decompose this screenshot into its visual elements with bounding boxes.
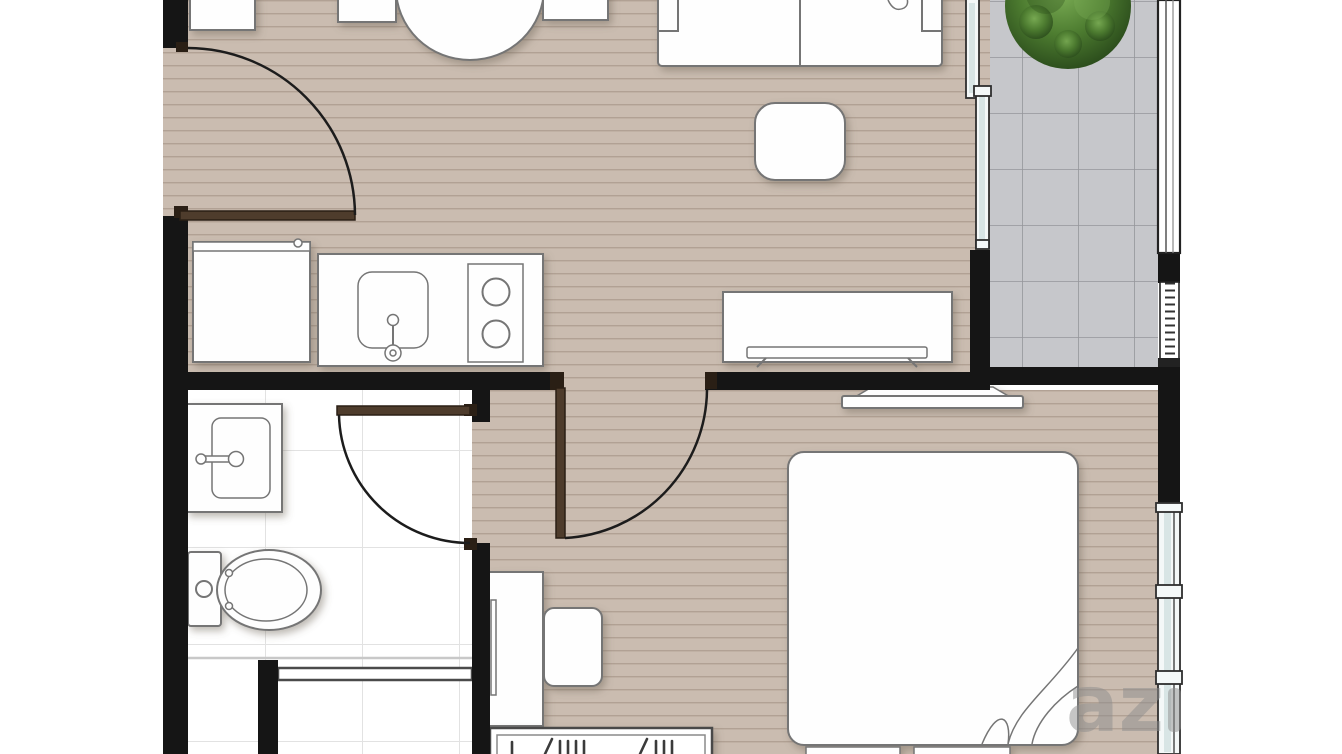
storage-cabinet: [190, 0, 255, 30]
bathroom-sink-unit: [187, 404, 282, 512]
wall-bathroom-right-bottom: [472, 543, 490, 754]
wall-bedroom-right: [1158, 385, 1180, 503]
wall-mid-horizontal-right: [705, 372, 990, 390]
watermark-partial-letter: [1168, 688, 1181, 732]
wall-left-main: [163, 216, 188, 754]
dining-chair-left: [338, 0, 396, 22]
coffee-table: [755, 103, 845, 180]
wall-shower-stub: [258, 660, 278, 754]
shower-partition: [278, 668, 472, 680]
floor-plan-image: az: [0, 0, 1342, 754]
railing-vent-detail: [1160, 282, 1179, 360]
sofa: [658, 0, 942, 66]
bedroom-door-leaf: [556, 388, 565, 538]
slider-latch: [974, 86, 991, 96]
dining-chair-right: [543, 0, 608, 20]
window-top-cap: [1156, 503, 1182, 512]
tv-console: [723, 292, 952, 367]
two-burner-stove: [468, 264, 523, 362]
wall-mid-horizontal-left: [163, 372, 557, 390]
bed-foot-bench-left: [806, 747, 900, 754]
wall-balcony-pillar: [1158, 253, 1180, 283]
floor-plan-drawing: az: [0, 0, 1342, 754]
wall-left-top: [163, 0, 188, 48]
desk-handle: [491, 600, 496, 695]
entrance-threshold: [166, 48, 188, 216]
refrigerator: [193, 239, 310, 362]
wall-below-slider: [970, 250, 990, 374]
railing-end-cap: [1158, 358, 1180, 367]
bed: [788, 452, 1078, 754]
kitchen-counter: [318, 254, 543, 366]
tv-shelf: [842, 387, 1023, 408]
watermark-text: az: [1066, 660, 1164, 750]
bed-foot-bench-right: [914, 747, 1010, 754]
desk-chair: [544, 608, 602, 686]
wardrobe: [490, 728, 712, 754]
wall-balcony-bedroom: [970, 367, 1180, 385]
balcony-railing: [1158, 0, 1180, 367]
watermark: az: [1066, 660, 1181, 750]
window-mullion-1: [1156, 585, 1182, 598]
entrance-door-leaf: [180, 211, 355, 220]
tv-screen: [747, 347, 927, 358]
toilet: [188, 550, 321, 630]
bathroom-door-leaf: [337, 406, 470, 415]
refrigerator-hinge-knob: [294, 239, 302, 247]
